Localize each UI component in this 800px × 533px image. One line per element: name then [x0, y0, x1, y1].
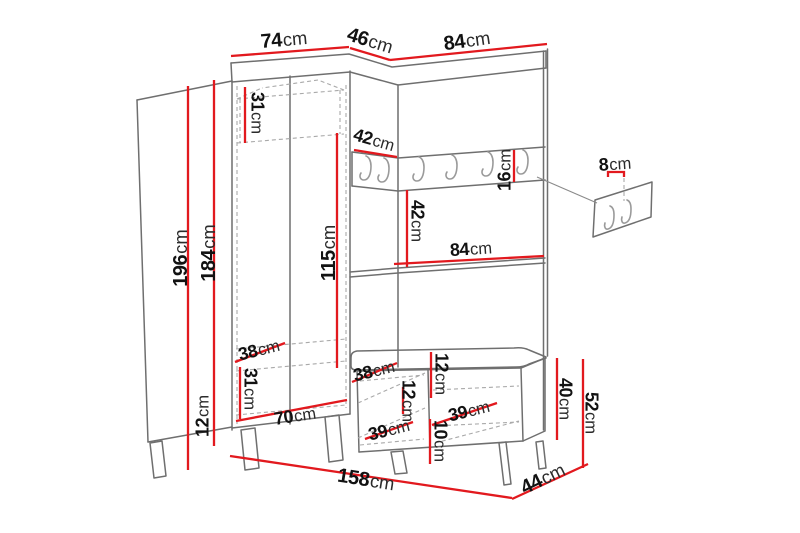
dim-value: 8	[598, 154, 609, 175]
dim-label-plinth-height: 12cm	[194, 395, 213, 437]
dim-label-shelf-opening-width: 84cm	[449, 238, 492, 259]
dim-label-left-section-top-width: 74cm	[260, 28, 308, 52]
side-panel-bottom	[148, 427, 232, 442]
dim-unit: cm	[496, 149, 515, 171]
dim-value: 40	[555, 378, 575, 397]
furniture-dimension-diagram: 74cm46cm84cm31cm196cm184cm115cm42cm16cm8…	[0, 0, 800, 533]
dim-label-carcass-height: 184cm	[199, 224, 219, 281]
detail-panel	[593, 182, 652, 237]
dim-value: 16	[495, 172, 515, 191]
dim-value: 70	[273, 406, 295, 429]
dim-label-bench-interior-height: 10cm	[431, 420, 450, 462]
hook-icon	[446, 155, 457, 179]
leg-left-1	[241, 428, 259, 470]
dim-value: 31	[240, 368, 260, 387]
dim-value: 12	[431, 353, 451, 372]
dim-value: 74	[260, 29, 283, 53]
dim-value: 158	[336, 465, 371, 492]
dim-unit: cm	[430, 440, 449, 462]
dim-unit: cm	[555, 398, 574, 420]
dim-label-total-height: 196cm	[171, 229, 191, 286]
dim-value: 84	[449, 239, 469, 260]
dim-unit: cm	[431, 373, 450, 395]
dim-value: 12	[193, 418, 213, 437]
dim-unit: cm	[407, 220, 426, 242]
detail-hook-icon	[622, 200, 631, 223]
detail-hook-icon	[605, 206, 614, 229]
dim-label-middle-shelf-opening-height: 42cm	[408, 200, 427, 242]
dim-unit: cm	[369, 470, 396, 495]
dim-label-middle-drawer-height: 12cm	[399, 380, 418, 422]
hook-icon	[378, 158, 389, 182]
dim-label-hook-rail-height: 16cm	[496, 149, 515, 191]
detail-leader-line	[537, 177, 597, 203]
top-front-edge	[232, 68, 546, 85]
dim-unit: cm	[282, 27, 308, 50]
dim-value: 184	[198, 250, 220, 282]
dim-unit: cm	[247, 112, 266, 134]
dim-value: 42	[407, 200, 427, 219]
dim-label-left-drawer-height: 31cm	[241, 368, 260, 410]
diagram-canvas	[0, 0, 800, 533]
leg-left-2	[325, 415, 343, 462]
dim-unit: cm	[194, 395, 213, 417]
dim-unit: cm	[170, 229, 191, 254]
dim-value: 12	[398, 380, 418, 399]
dim-unit: cm	[293, 404, 318, 426]
dim-label-bench-total-height: 52cm	[582, 392, 601, 434]
dim-label-bench-opening-height: 40cm	[556, 378, 575, 420]
hook-icon	[517, 150, 528, 174]
dim-label-top-shelf-height: 31cm	[248, 92, 267, 134]
dim-unit: cm	[464, 27, 491, 51]
dim-value: 31	[247, 92, 267, 111]
leg-side	[150, 441, 166, 478]
dim-label-hanging-space-height: 115cm	[319, 225, 339, 281]
leg-middle	[391, 451, 407, 474]
dim-unit: cm	[240, 388, 259, 410]
side-panel-left-edge	[137, 100, 148, 442]
dim-unit: cm	[609, 154, 632, 174]
dim-unit: cm	[469, 238, 492, 258]
bench-side-panel	[521, 358, 545, 441]
leg-bench-1	[499, 442, 511, 485]
dim-value: 10	[430, 420, 450, 439]
dim-unit: cm	[318, 225, 339, 250]
side-panel-top	[137, 81, 232, 100]
dim-value: 84	[442, 30, 466, 55]
dim-unit: cm	[581, 412, 600, 434]
dim-value: 196	[170, 255, 192, 287]
hook-icon	[413, 157, 424, 181]
dim-unit: cm	[198, 224, 219, 249]
cabinet-right-edge	[521, 368, 523, 441]
hook-icon	[360, 156, 371, 180]
top-left-corner	[231, 63, 232, 82]
dim-value: 52	[581, 392, 601, 411]
dim-value: 115	[318, 250, 340, 281]
dim-label-hook-spacing: 8cm	[598, 154, 632, 175]
dim-label-seat-cushion-height: 12cm	[432, 353, 451, 395]
hook-icon	[482, 152, 493, 176]
